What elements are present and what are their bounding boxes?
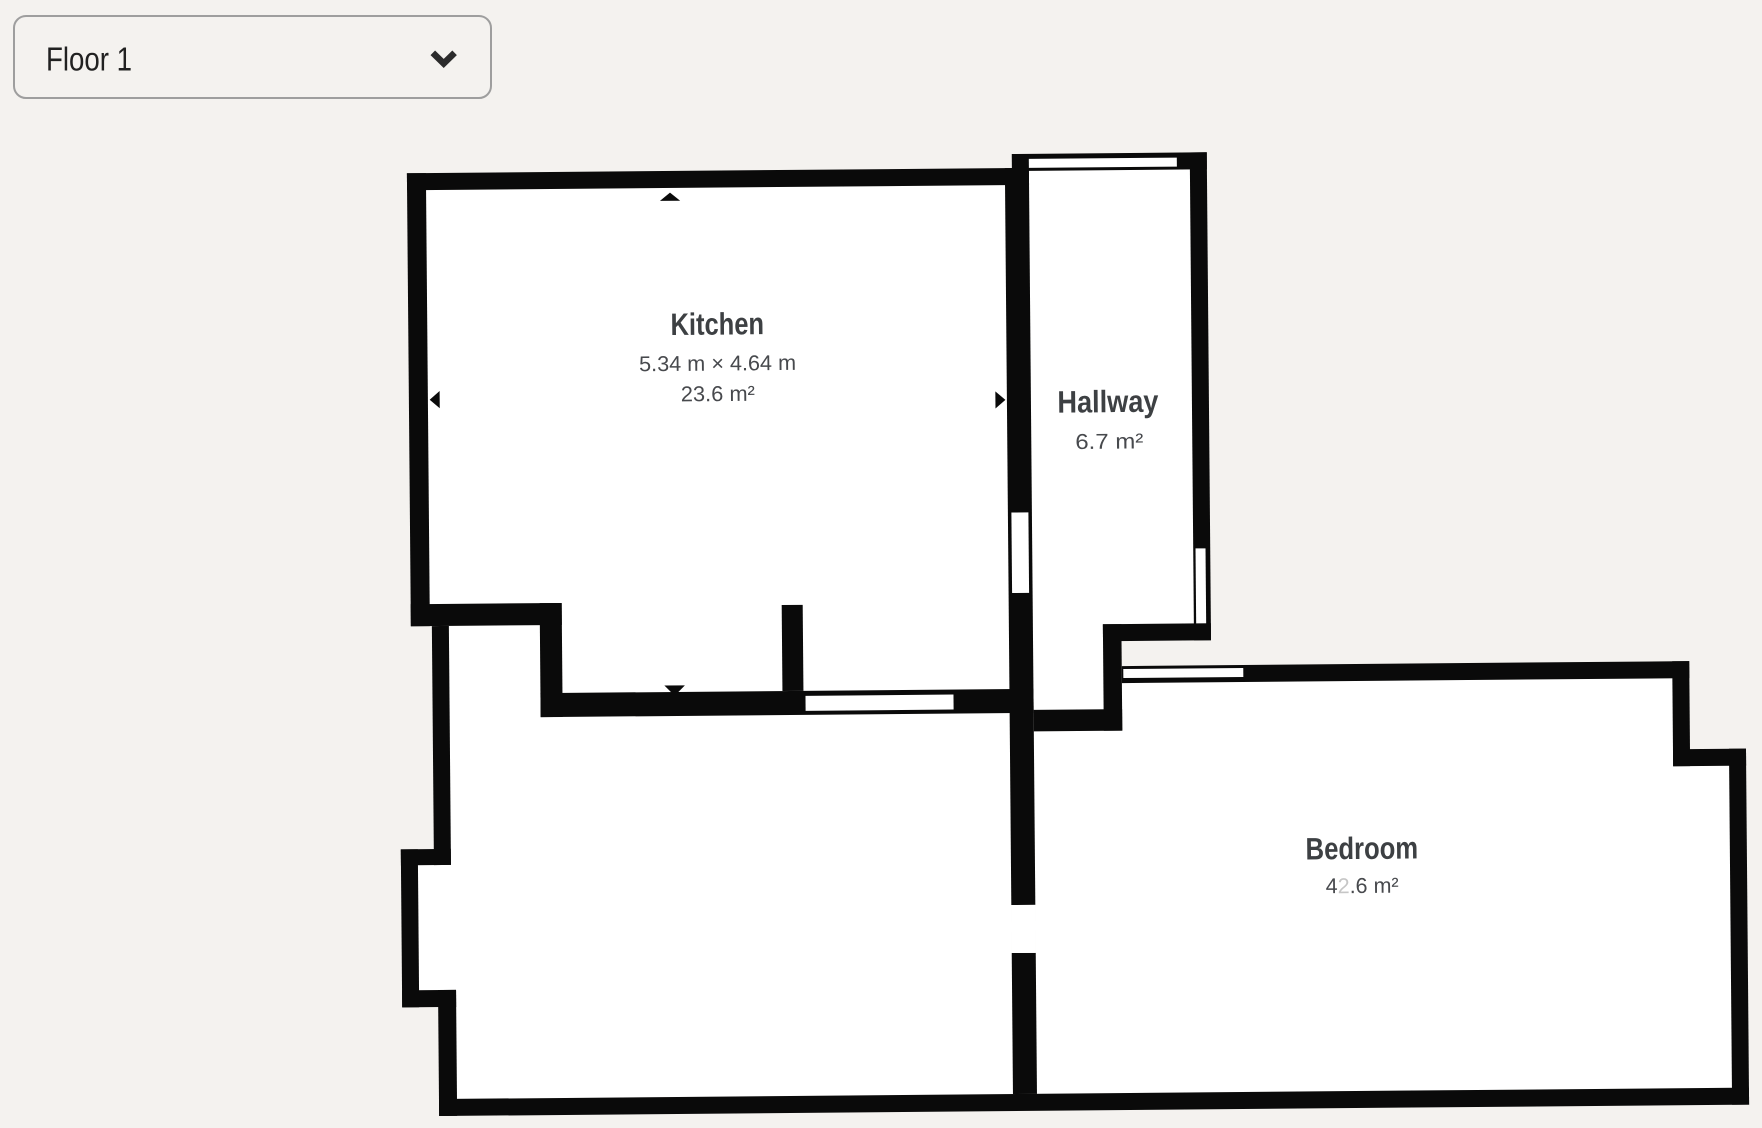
svg-text:23.6 m²: 23.6 m² (681, 382, 755, 407)
svg-text:Kitchen: Kitchen (670, 306, 764, 342)
svg-text:6.7 m²: 6.7 m² (1075, 429, 1143, 454)
svg-text:Hallway: Hallway (1057, 384, 1159, 420)
svg-text:42.6 m²: 42.6 m² (1326, 874, 1399, 899)
svg-text:Floor 1: Floor 1 (46, 41, 132, 78)
svg-text:5.34 m × 4.64 m: 5.34 m × 4.64 m (639, 351, 796, 376)
svg-text:Bedroom: Bedroom (1305, 830, 1418, 866)
